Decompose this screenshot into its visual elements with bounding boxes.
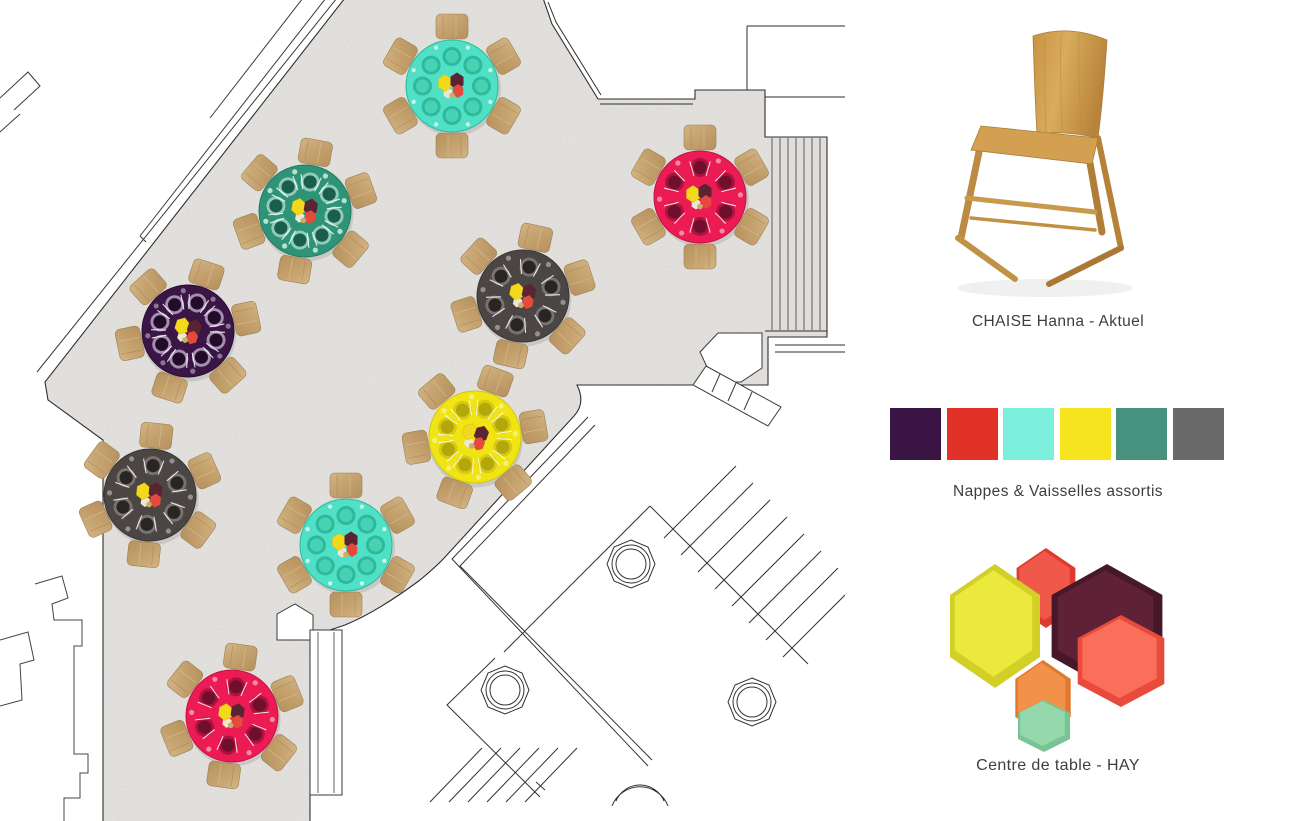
column-octagon — [607, 540, 655, 588]
column-octagon — [728, 678, 776, 726]
chair — [206, 760, 241, 789]
chair — [127, 540, 161, 568]
chair-product-photo — [945, 16, 1180, 306]
chair — [330, 592, 362, 617]
chair — [297, 137, 333, 167]
chair — [684, 244, 716, 269]
palette-swatch-4 — [1060, 408, 1111, 460]
color-palette — [890, 408, 1224, 460]
floor-plan — [0, 0, 845, 821]
chair-product-label: CHAISE Hanna - Aktuel — [880, 313, 1236, 331]
palette-swatch-3 — [1003, 408, 1054, 460]
presentation-board: CHAISE Hanna - Aktuel Nappes & Vaisselle… — [0, 0, 1300, 821]
chair — [139, 422, 173, 450]
chair — [684, 125, 716, 150]
chair — [277, 255, 313, 285]
chair-drawing — [958, 31, 1121, 284]
chair — [401, 429, 431, 465]
chair — [330, 473, 362, 498]
building-outlines-bottomleft — [0, 576, 88, 821]
centerpiece-label: Centre de table - HAY — [880, 757, 1236, 775]
column-octagon — [481, 666, 529, 714]
chair — [519, 409, 549, 445]
palette-swatch-5 — [1116, 408, 1167, 460]
palette-swatch-1 — [890, 408, 941, 460]
chair — [436, 14, 468, 39]
palette-swatch-6 — [1173, 408, 1224, 460]
centerpiece-trays-photo — [930, 548, 1200, 754]
chair — [436, 133, 468, 158]
palette-label: Nappes & Vaisselles assortis — [880, 483, 1236, 501]
palette-swatch-2 — [947, 408, 998, 460]
chair — [223, 642, 258, 671]
